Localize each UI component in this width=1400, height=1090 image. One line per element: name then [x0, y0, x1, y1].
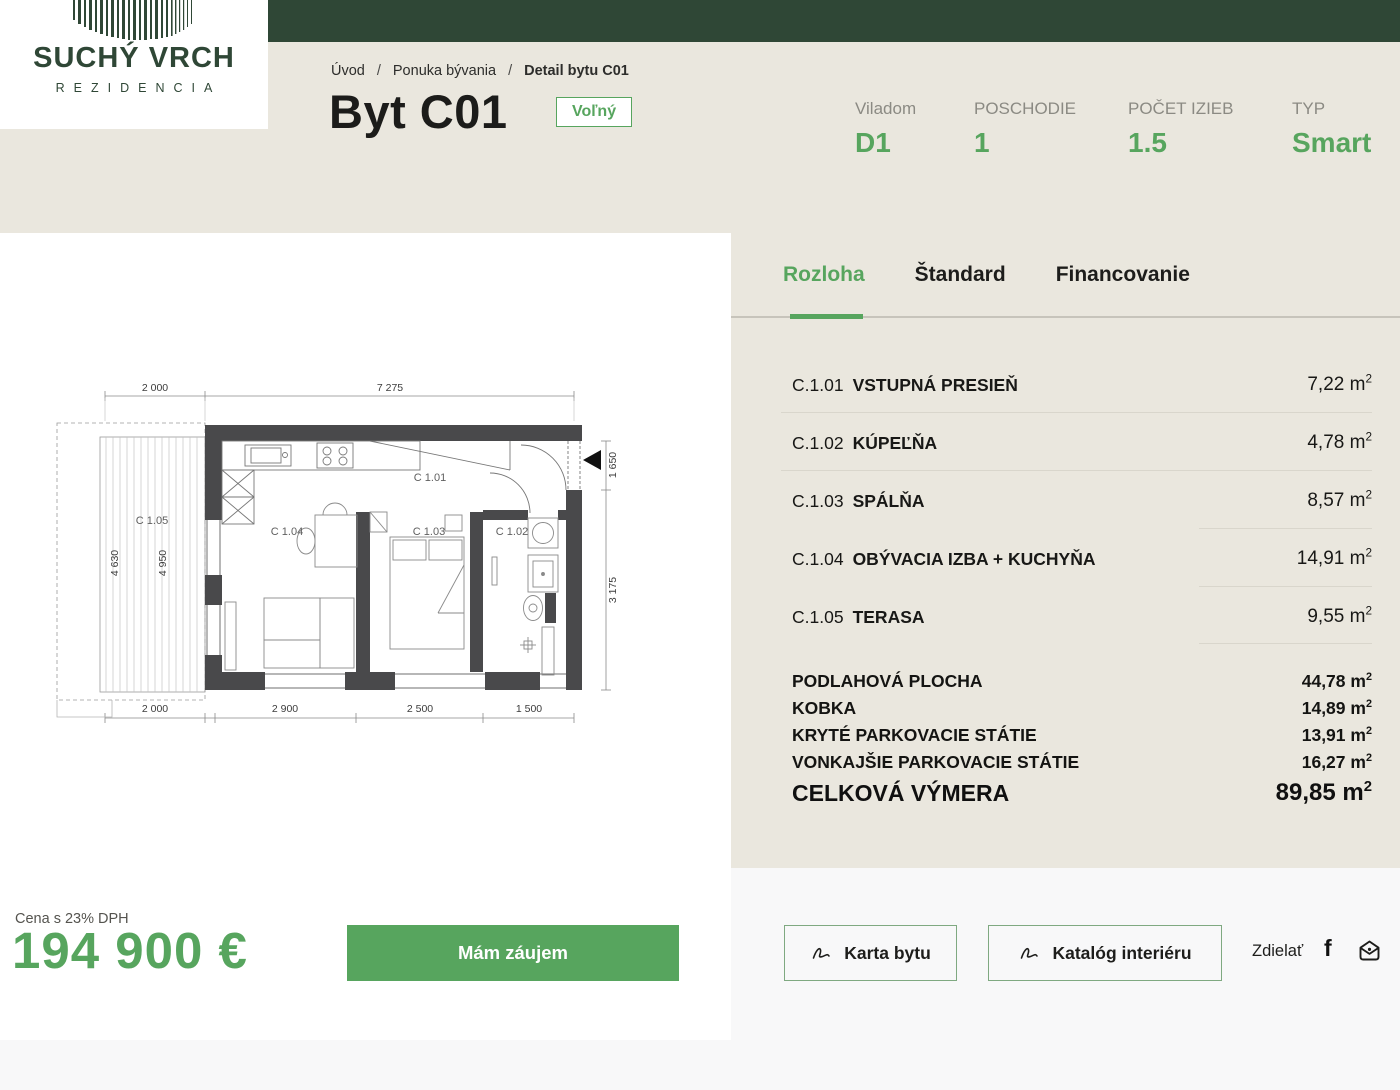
info-poschodie: POSCHODIE 1 [974, 99, 1076, 159]
room-row: C.1.03SPÁLŇA 8,57 m2 [792, 472, 1372, 530]
interest-button[interactable]: Mám záujem [347, 925, 679, 981]
room-area: 8,57 m2 [1307, 490, 1372, 512]
dim-top-terrace: 2 000 [142, 382, 168, 394]
dim-right-bath: 3 175 [607, 577, 619, 603]
breadcrumb-current: Detail bytu C01 [524, 63, 629, 79]
dim-terrace-height2: 4 950 [157, 550, 169, 576]
row-divider [1199, 528, 1372, 529]
info-label: POČET IZIEB [1128, 99, 1234, 119]
share-label: Zdielať [1252, 942, 1303, 961]
info-typ: TYP Smart [1292, 99, 1371, 159]
dim-bottom-bedroom: 2 500 [407, 703, 433, 715]
tab-standard[interactable]: Štandard [915, 263, 1006, 287]
info-value: 1.5 [1128, 127, 1234, 159]
room-row: C.1.01VSTUPNÁ PRESIEŇ 7,22 m2 [792, 356, 1372, 414]
brand-subtitle: REZIDENCIA [0, 81, 268, 95]
button-label: Katalóg interiéru [1052, 943, 1191, 964]
total-label: VONKAJŠIE PARKOVACIE STÁTIE [792, 752, 1079, 773]
brand-logo[interactable]: SUCHÝ VRCH REZIDENCIA [0, 0, 268, 129]
breadcrumb-separator: / [377, 63, 381, 79]
total-row: PODLAHOVÁ PLOCHA 44,78 m2 [792, 668, 1372, 695]
logo-bars-icon [71, 0, 197, 40]
facebook-icon[interactable]: f [1324, 935, 1332, 962]
total-label: KOBKA [792, 698, 856, 719]
info-value: Smart [1292, 127, 1371, 159]
tab-financovanie[interactable]: Financovanie [1056, 263, 1190, 287]
total-row: KRYTÉ PARKOVACIE STÁTIE 13,91 m2 [792, 722, 1372, 749]
info-label: Viladom [855, 99, 916, 119]
apartment-detail-page: SUCHÝ VRCH REZIDENCIA Úvod / Ponuka býva… [0, 0, 1400, 1090]
brand-name: SUCHÝ VRCH [0, 42, 268, 75]
room-row: C.1.04OBÝVACIA IZBA + KUCHYŇA 14,91 m2 [792, 530, 1372, 588]
availability-badge: Voľný [556, 97, 632, 127]
tab-rozloha[interactable]: Rozloha [783, 263, 865, 287]
room-name: TERASA [853, 607, 925, 627]
info-pocet-izieb: POČET IZIEB 1.5 [1128, 99, 1234, 159]
page-title: Byt C01 [329, 84, 508, 139]
room-code: C.1.02 [792, 433, 844, 453]
entrance-arrow-icon [583, 450, 601, 470]
dim-top-main: 7 275 [377, 382, 403, 394]
dim-bottom-living: 2 900 [272, 703, 298, 715]
row-divider [1199, 643, 1372, 644]
room-code: C.1.05 [792, 607, 844, 627]
breadcrumb-separator: / [508, 63, 512, 79]
dim-bottom-terrace: 2 000 [142, 703, 168, 715]
room-area: 4,78 m2 [1307, 432, 1372, 454]
room-list: C.1.01VSTUPNÁ PRESIEŇ 7,22 m2 C.1.02KÚPE… [792, 356, 1372, 646]
grand-total-label: CELKOVÁ VÝMERA [792, 780, 1009, 807]
pdf-icon [1018, 942, 1040, 964]
room-area: 14,91 m2 [1297, 548, 1372, 570]
price-value: 194 900 € [12, 921, 248, 980]
breadcrumb: Úvod / Ponuka bývania / Detail bytu C01 [331, 63, 629, 79]
room-name: KÚPEĽŇA [853, 433, 938, 453]
room-label-c104: C 1.04 [271, 526, 303, 538]
room-code: C.1.01 [792, 375, 844, 395]
room-row: C.1.02KÚPEĽŇA 4,78 m2 [792, 414, 1372, 472]
button-label: Karta bytu [844, 943, 931, 964]
total-area: 13,91 m2 [1302, 725, 1372, 746]
room-label-c102: C 1.02 [496, 526, 528, 538]
room-code: C.1.03 [792, 491, 844, 511]
floorplan-drawing: 2 000 7 275 2 000 2 900 2 500 1 500 1 65… [40, 365, 690, 740]
email-share-icon[interactable] [1356, 937, 1383, 969]
room-name: OBÝVACIA IZBA + KUCHYŇA [853, 549, 1096, 569]
total-area: 14,89 m2 [1302, 698, 1372, 719]
breadcrumb-home[interactable]: Úvod [331, 63, 365, 79]
grand-total-area: 89,85 m2 [1276, 779, 1372, 807]
room-code: C.1.04 [792, 549, 844, 569]
info-viladom: Viladom D1 [855, 99, 916, 159]
dim-right-entry: 1 650 [607, 452, 619, 478]
breadcrumb-offer[interactable]: Ponuka bývania [393, 63, 496, 79]
room-label-c103: C 1.03 [413, 526, 445, 538]
room-name: VSTUPNÁ PRESIEŇ [853, 375, 1018, 395]
totals-list: PODLAHOVÁ PLOCHA 44,78 m2 KOBKA 14,89 m2… [792, 668, 1372, 776]
room-label-c101: C 1.01 [414, 472, 446, 484]
info-label: POSCHODIE [974, 99, 1076, 119]
room-area: 7,22 m2 [1307, 374, 1372, 396]
dim-terrace-height1: 4 630 [109, 550, 121, 576]
interior-catalog-button[interactable]: Katalóg interiéru [988, 925, 1222, 981]
room-label-c105: C 1.05 [136, 515, 168, 527]
info-value: 1 [974, 127, 1076, 159]
pdf-icon [810, 942, 832, 964]
info-value: D1 [855, 127, 916, 159]
grand-total: CELKOVÁ VÝMERA 89,85 m2 [792, 779, 1372, 807]
row-divider [781, 412, 1372, 413]
active-tab-underline [790, 314, 863, 319]
total-label: PODLAHOVÁ PLOCHA [792, 671, 983, 692]
total-label: KRYTÉ PARKOVACIE STÁTIE [792, 725, 1037, 746]
apartment-card-button[interactable]: Karta bytu [784, 925, 957, 981]
info-label: TYP [1292, 99, 1371, 119]
room-area: 9,55 m2 [1307, 606, 1372, 628]
walls [205, 425, 582, 690]
room-name: SPÁLŇA [853, 491, 925, 511]
total-area: 44,78 m2 [1302, 671, 1372, 692]
row-divider [1199, 586, 1372, 587]
total-row: VONKAJŠIE PARKOVACIE STÁTIE 16,27 m2 [792, 749, 1372, 776]
total-area: 16,27 m2 [1302, 752, 1372, 773]
row-divider [781, 470, 1372, 471]
total-row: KOBKA 14,89 m2 [792, 695, 1372, 722]
tab-bar: Rozloha Štandard Financovanie [783, 263, 1190, 287]
dim-bottom-bath: 1 500 [516, 703, 542, 715]
room-row: C.1.05TERASA 9,55 m2 [792, 588, 1372, 646]
